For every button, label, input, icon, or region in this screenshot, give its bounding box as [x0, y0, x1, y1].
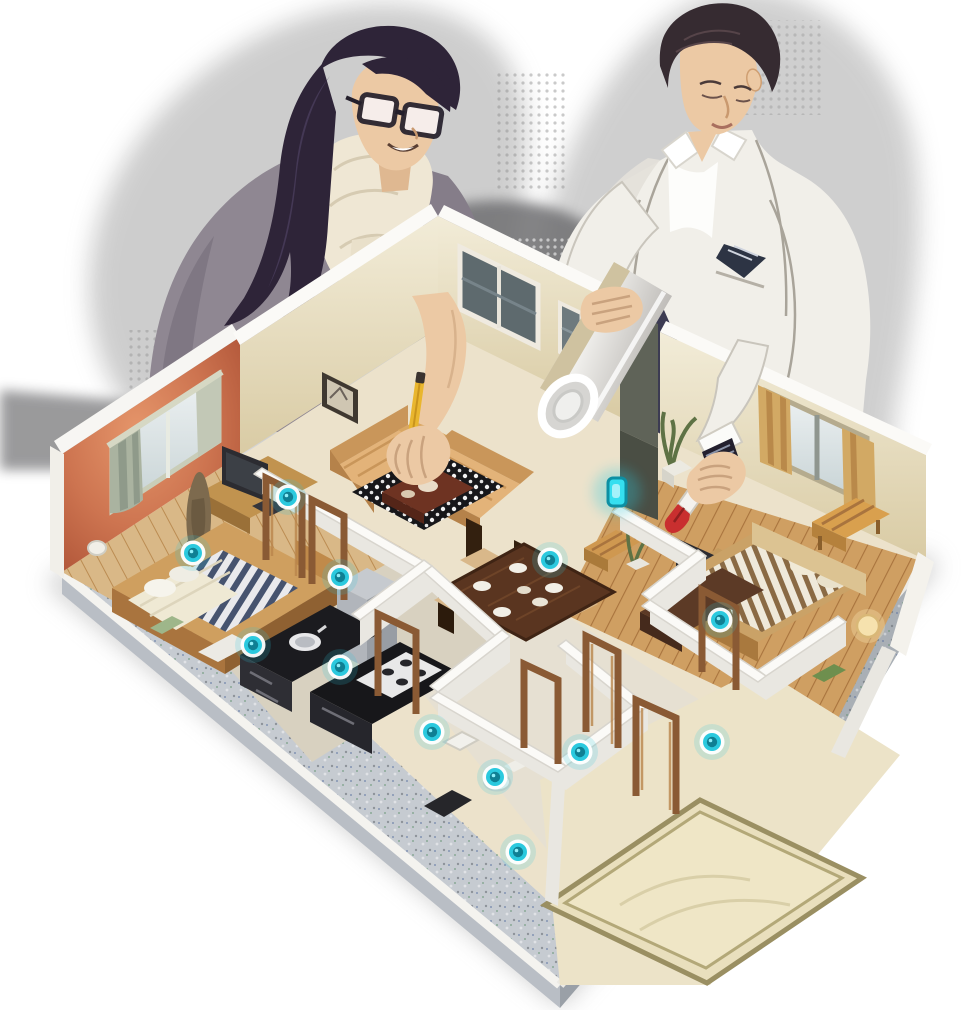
bedside-lamp [851, 609, 885, 643]
sensor-dot [477, 759, 513, 795]
wall-sensor [593, 468, 641, 516]
halftone-patch [495, 70, 565, 190]
sensor-dot [235, 627, 271, 663]
sensor-dot [500, 834, 536, 870]
sensor-dot [532, 542, 568, 578]
scene-illustration [0, 0, 972, 1010]
sensor-dot [694, 724, 730, 760]
sensor-dot [702, 602, 738, 638]
sensor-dot [414, 714, 450, 750]
sensor-dot [175, 535, 211, 571]
floor-knob [88, 541, 106, 555]
sensor-dot [270, 479, 306, 515]
sensor-dot [562, 734, 598, 770]
sensor-dot [322, 649, 358, 685]
sensor-dot [322, 559, 358, 595]
illustration-stage [0, 0, 972, 1010]
